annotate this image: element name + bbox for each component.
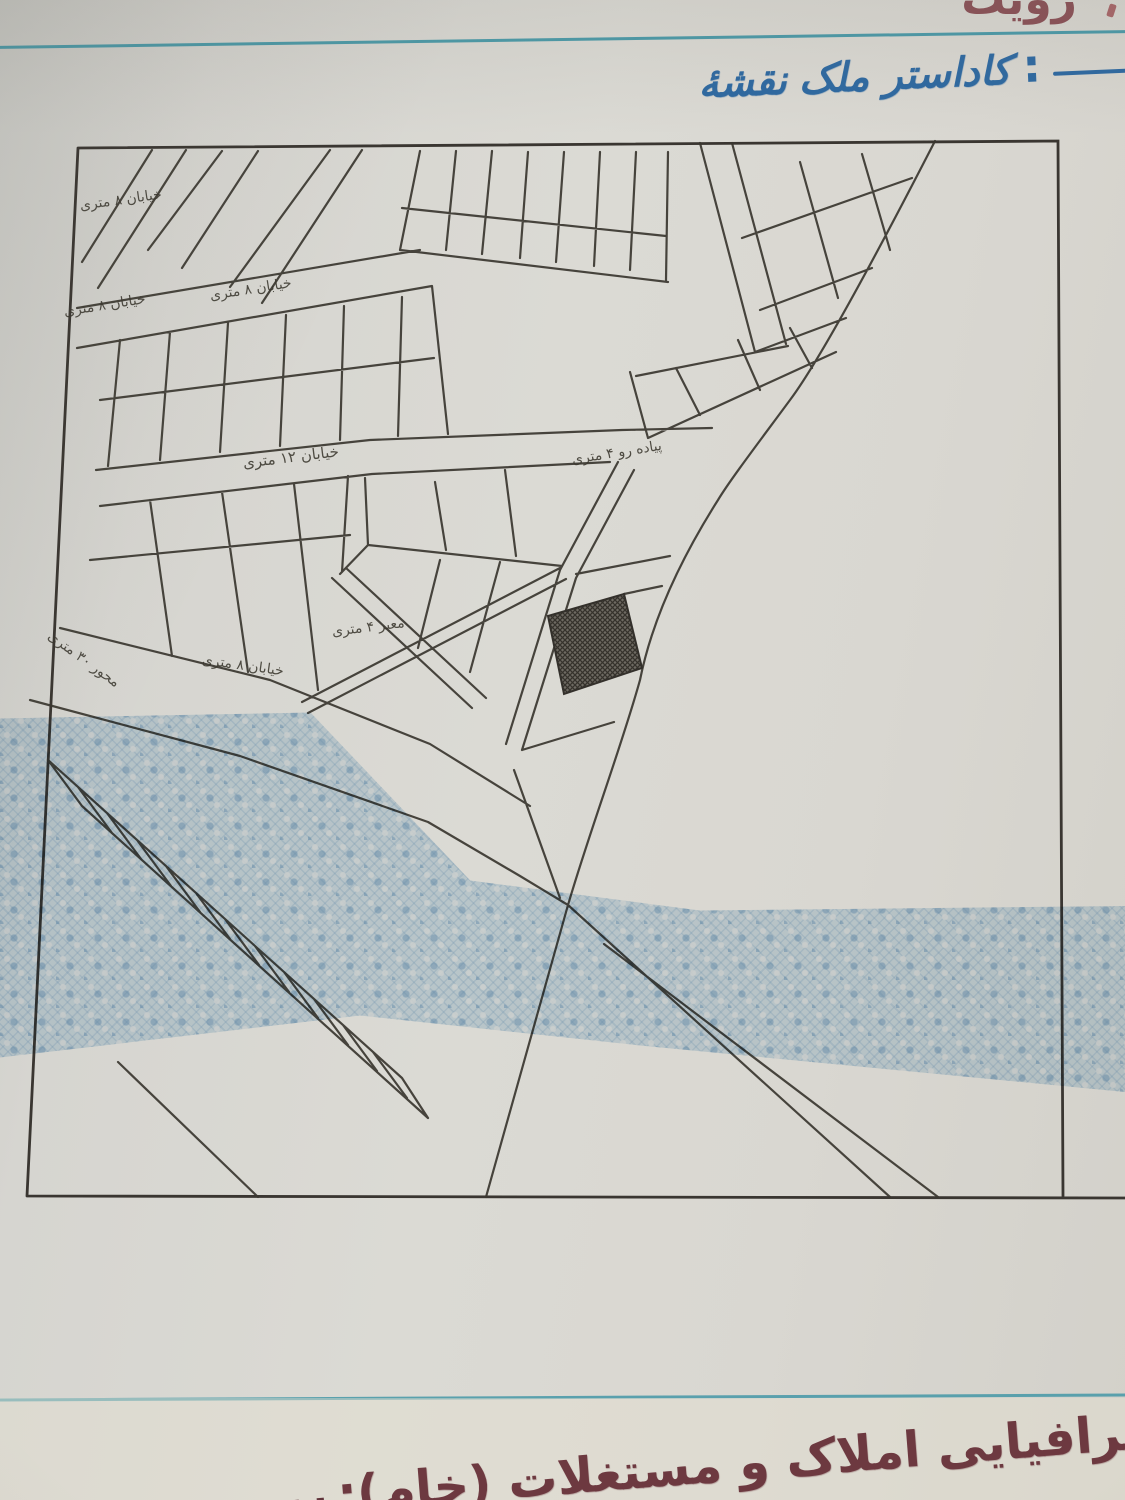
highlighted-parcel xyxy=(548,594,642,694)
cadastre-document-photo: رؤیت نقشهٔ کاداستر ملک : خیابان ۸ xyxy=(0,0,1125,1500)
map-drawing xyxy=(0,0,1125,1500)
street-network xyxy=(30,141,938,1197)
cadastral-map: خیابان ۸ متری خیابان ۸ متری خیابان ۸ متر… xyxy=(0,0,1125,1500)
